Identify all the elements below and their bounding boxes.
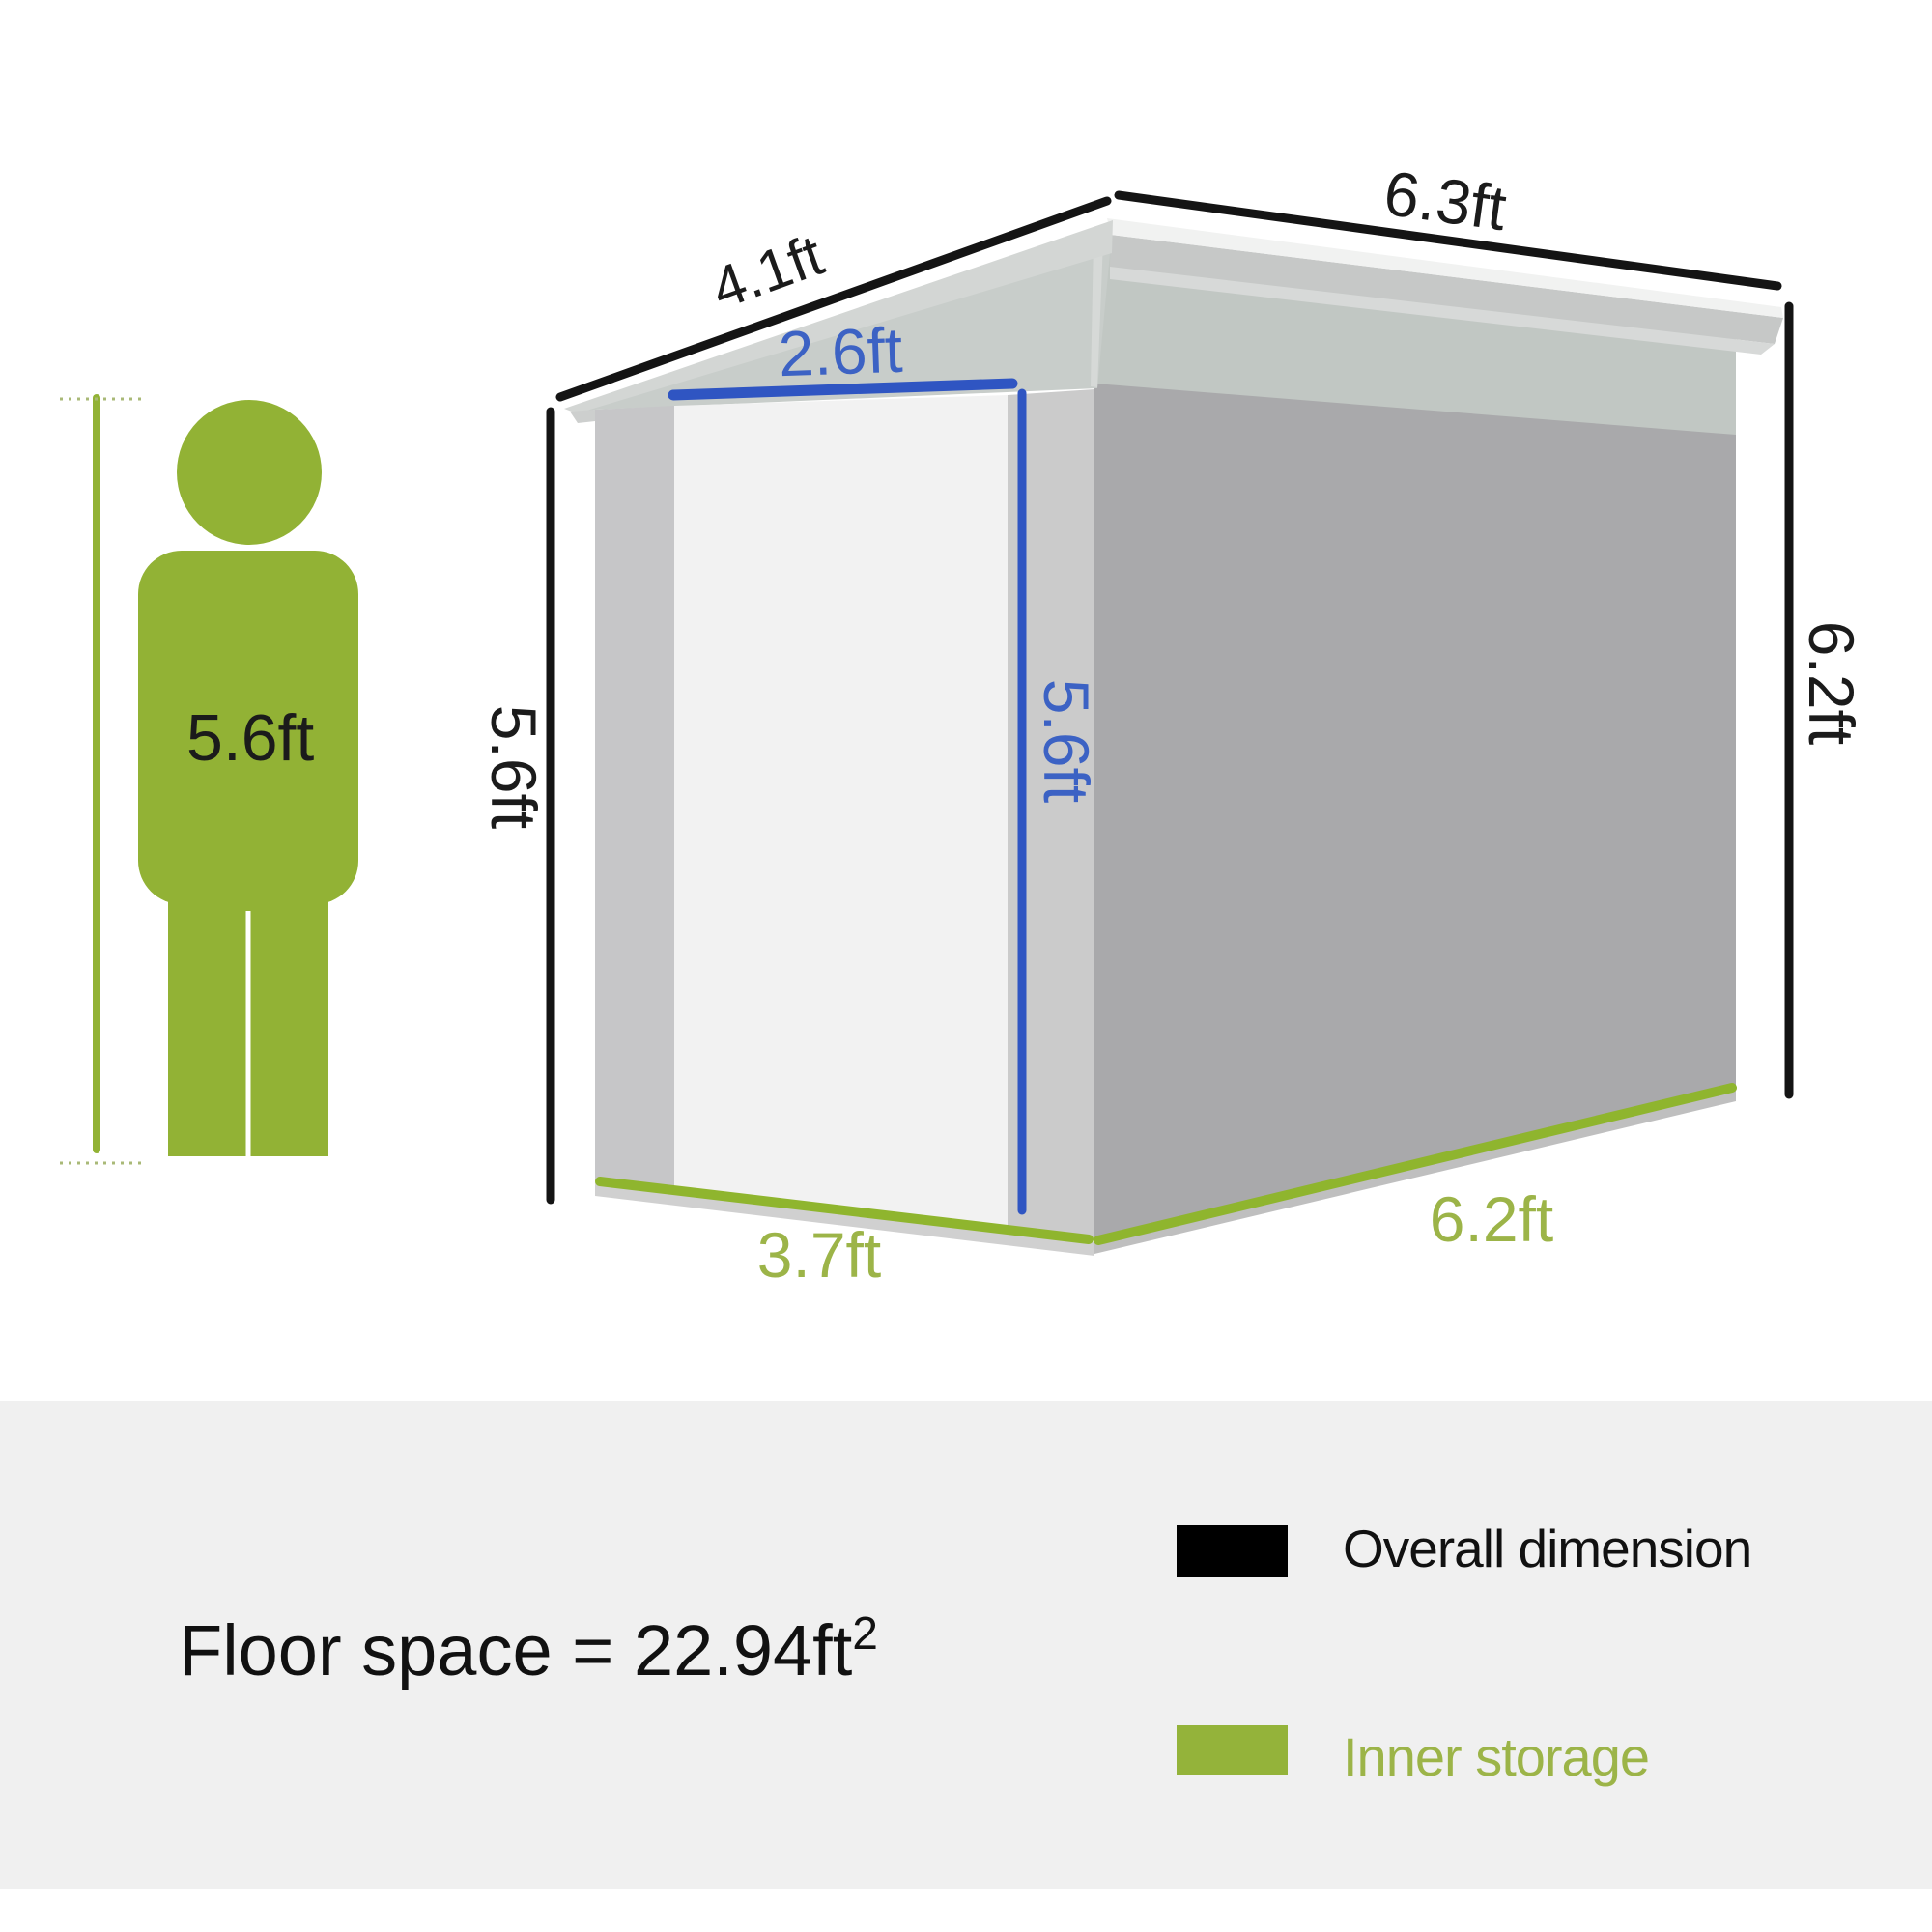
svg-text:5.6ft: 5.6ft bbox=[478, 705, 550, 829]
svg-text:Floor space = 22.94ft2: Floor space = 22.94ft2 bbox=[179, 1608, 878, 1690]
svg-text:Inner storage: Inner storage bbox=[1343, 1726, 1649, 1787]
svg-text:6.2ft: 6.2ft bbox=[1430, 1183, 1553, 1255]
svg-text:3.7ft: 3.7ft bbox=[757, 1219, 881, 1291]
svg-text:Overall dimension: Overall dimension bbox=[1343, 1519, 1751, 1578]
svg-text:6.2ft: 6.2ft bbox=[1796, 621, 1867, 745]
svg-text:2.6ft: 2.6ft bbox=[778, 314, 904, 389]
svg-text:5.6ft: 5.6ft bbox=[186, 701, 314, 775]
svg-text:5.6ft: 5.6ft bbox=[1031, 679, 1102, 803]
